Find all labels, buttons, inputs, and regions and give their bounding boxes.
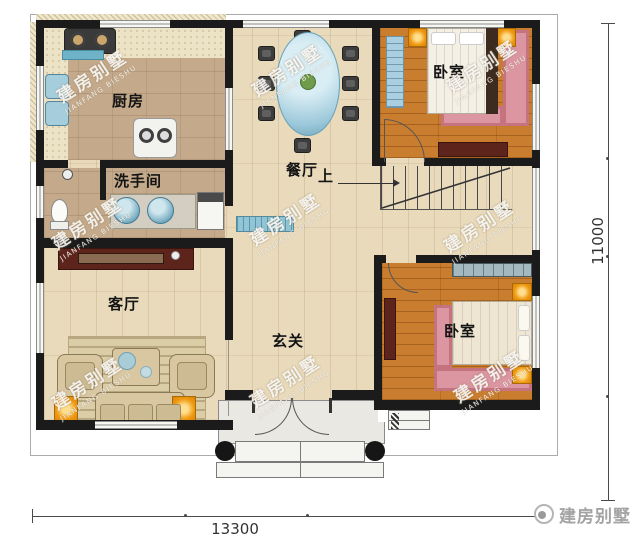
side-cabinet-icon <box>384 298 396 360</box>
dining-chair-icon <box>342 46 359 61</box>
side-steps <box>388 410 430 430</box>
window <box>532 296 540 368</box>
wall <box>36 238 233 248</box>
side-table-lamp-icon <box>54 396 78 422</box>
window <box>532 168 540 250</box>
brand-logo-text: 建房别墅 <box>559 502 635 524</box>
bath-sink-icon <box>147 197 174 224</box>
room-label-dining: 餐厅 <box>282 161 322 179</box>
dimension-height-label: 11000 <box>589 211 607 271</box>
toilet-icon <box>51 199 68 223</box>
room-label-living: 客厅 <box>104 295 144 313</box>
dimension-tick <box>306 514 309 517</box>
burner-icon <box>139 128 154 143</box>
stairs-direction-line <box>338 183 394 184</box>
wardrobe-icon <box>452 263 532 277</box>
dining-chair-icon <box>258 46 275 61</box>
wall <box>225 390 253 400</box>
burner-icon <box>94 32 110 48</box>
dimension-tick <box>184 514 187 517</box>
wall <box>100 160 225 168</box>
window <box>36 283 44 353</box>
room-label-foyer: 玄关 <box>268 332 308 350</box>
stairs-break-line <box>380 166 512 210</box>
dimension-tick <box>606 395 609 398</box>
toilet-tank-icon <box>50 221 69 230</box>
wall <box>372 28 380 162</box>
window <box>36 186 44 218</box>
table-centerpiece-icon <box>300 74 316 90</box>
nightstand-lamp-icon <box>512 366 532 384</box>
wall <box>416 255 540 263</box>
pillow-icon <box>518 335 530 361</box>
pillow-icon <box>518 305 530 331</box>
nightstand-lamp-icon <box>497 28 516 47</box>
window <box>36 66 44 130</box>
dining-chair-icon <box>342 106 359 121</box>
table-decor-icon <box>118 352 136 370</box>
porch-step <box>235 441 365 462</box>
window <box>100 20 170 28</box>
bath-sink-icon <box>113 197 140 224</box>
dining-chair-icon <box>258 76 275 91</box>
brand-logo-icon <box>534 504 554 524</box>
room-label-bedroom-top: 卧室 <box>429 63 469 81</box>
dining-chair-icon <box>342 76 359 91</box>
stairs-arrow-icon <box>393 179 400 187</box>
porch-column-icon <box>365 441 385 461</box>
window <box>532 84 540 150</box>
table-decor-icon <box>140 366 152 378</box>
tv-icon <box>78 253 164 264</box>
room-label-kitchen: 厨房 <box>108 92 148 110</box>
coffee-table-icon <box>112 348 160 386</box>
room-label-bathroom: 洗手间 <box>108 172 168 190</box>
armchair-cushion <box>177 362 207 390</box>
burner-icon <box>157 128 172 143</box>
dimension-tick <box>601 23 615 24</box>
wall <box>374 400 540 410</box>
dimension-width-label: 13300 <box>205 520 265 538</box>
wall <box>225 168 233 206</box>
living-foyer-divider-line <box>228 340 229 416</box>
pillow-icon <box>431 32 456 45</box>
dresser-icon <box>438 142 508 157</box>
wall <box>332 390 378 400</box>
burner-icon <box>70 32 86 48</box>
door-leaf <box>329 398 332 413</box>
wall <box>225 28 233 88</box>
nightstand-lamp-icon <box>408 28 427 47</box>
wall <box>374 263 382 400</box>
porch-step <box>216 462 384 478</box>
window <box>95 421 177 429</box>
kitchen-sink-icon <box>45 101 69 126</box>
room-label-bedroom-bottom: 卧室 <box>440 322 480 340</box>
wall <box>225 150 233 168</box>
bath-fixture-icon <box>62 169 73 180</box>
dining-chair-icon <box>294 138 311 153</box>
dimension-tick <box>32 509 33 523</box>
armchair-cushion <box>65 362 95 390</box>
vase-icon <box>171 251 180 260</box>
dimension-line-right <box>608 23 609 501</box>
porch-column-icon <box>215 441 235 461</box>
floor-plan: 上 卧室 卧室 <box>0 0 640 548</box>
wall <box>374 255 386 263</box>
dimension-tick <box>601 500 615 501</box>
nightstand-lamp-icon <box>512 283 532 301</box>
window <box>420 20 504 28</box>
pillow-icon <box>459 32 484 45</box>
dimension-line-bottom <box>32 516 540 517</box>
dimension-tick <box>606 157 609 160</box>
glass-cabinet-icon <box>236 216 294 232</box>
window <box>243 20 329 28</box>
bed-runner <box>486 28 498 114</box>
washing-machine-panel <box>198 193 223 202</box>
sliding-door <box>225 88 233 150</box>
wall <box>44 160 68 168</box>
dining-chair-icon <box>258 106 275 121</box>
radiator-closet-icon <box>386 36 404 108</box>
kitchen-sink-icon <box>45 74 69 99</box>
wall <box>100 168 106 200</box>
wall <box>225 248 233 340</box>
kitchen-counter-accent <box>62 50 104 60</box>
wall <box>424 158 540 166</box>
